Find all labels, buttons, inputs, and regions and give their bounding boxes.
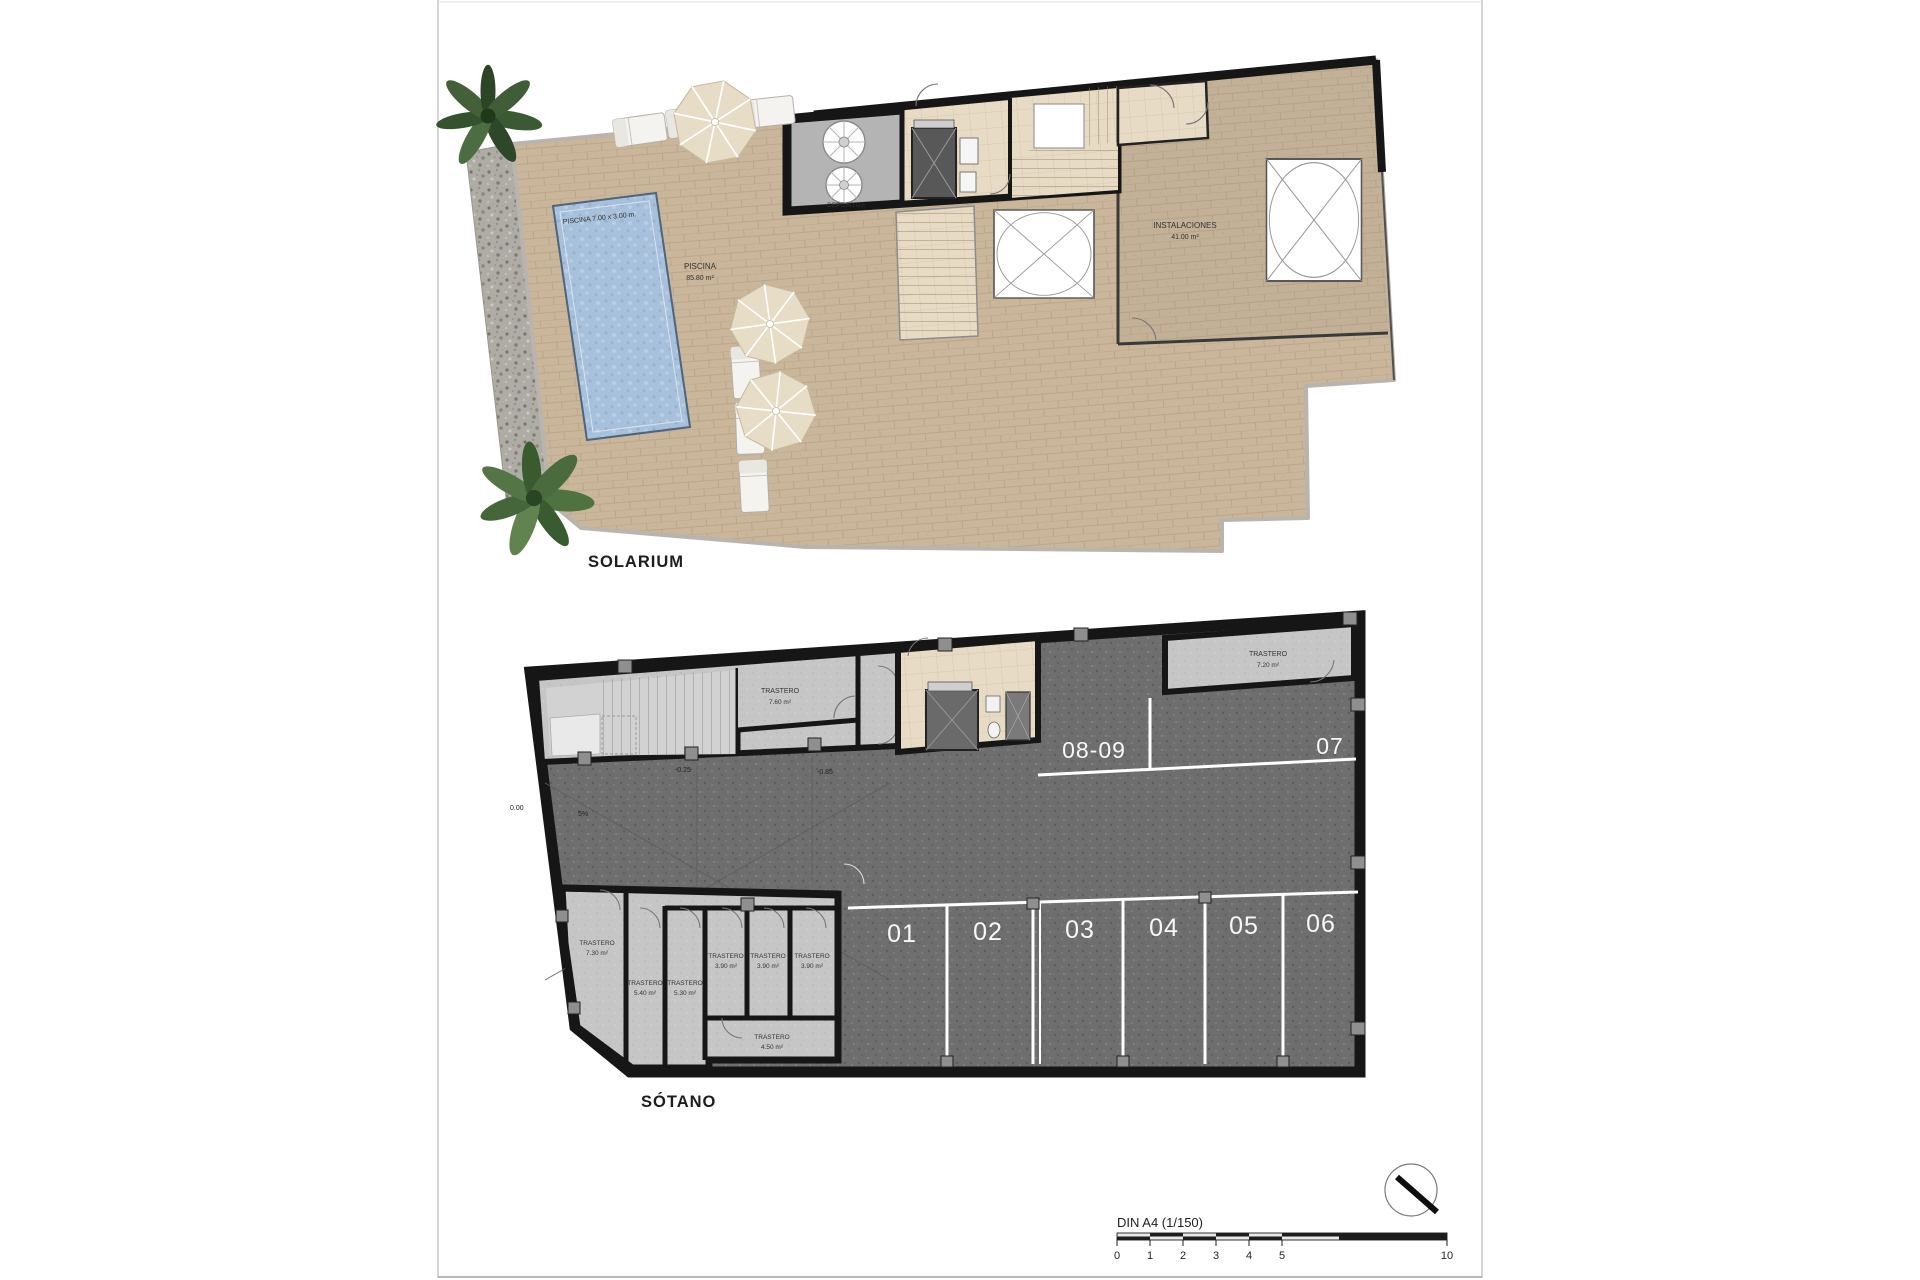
storeroom-area: 3.90 m² bbox=[757, 963, 780, 970]
machinery bbox=[914, 120, 954, 128]
roof-core: DEPOSITOS bbox=[786, 84, 1118, 212]
toilet-fixture bbox=[960, 138, 978, 164]
storeroom-label: TRASTERO bbox=[708, 953, 743, 960]
storeroom-area: 5.40 m² bbox=[634, 990, 657, 997]
parking-spot: 01 bbox=[887, 920, 917, 948]
pool-area-value: 85.80 m² bbox=[686, 275, 714, 282]
sink-fixture bbox=[986, 696, 1000, 712]
storeroom-label: TRASTERO bbox=[627, 980, 662, 987]
instalaciones-label: INSTALACIONES bbox=[1153, 221, 1216, 230]
sink-fixture bbox=[960, 172, 976, 192]
scale-tick: 4 bbox=[1246, 1250, 1252, 1262]
storeroom-area: 7.60 m² bbox=[769, 699, 792, 706]
water-tank-icon bbox=[826, 167, 862, 203]
scale-tick: 2 bbox=[1180, 1250, 1186, 1262]
basement-stairs bbox=[600, 670, 738, 756]
level-zero: 0.00 bbox=[510, 805, 524, 812]
floorplan-drawing: DEPOSITOS PISCINA 7.00 x 3.00 m. bbox=[0, 0, 1920, 1280]
north-arrow-icon bbox=[1385, 1164, 1437, 1216]
scale-label: DIN A4 (1/150) bbox=[1117, 1215, 1203, 1230]
machinery bbox=[928, 682, 972, 691]
scale-tick: 10 bbox=[1441, 1250, 1453, 1262]
storeroom-label: TRASTERO bbox=[579, 940, 614, 947]
parking-spot: 02 bbox=[973, 918, 1003, 946]
water-tank-icon bbox=[823, 121, 865, 163]
level-lower: -0.85 bbox=[817, 769, 833, 776]
scale-bar: DIN A4 (1/150) 0 1 2 3 4 5 10 bbox=[1114, 1215, 1453, 1262]
storeroom-area: 7.30 m² bbox=[586, 950, 609, 957]
parking-spot-0809: 08-09 bbox=[1062, 737, 1126, 763]
scale-tick: 5 bbox=[1279, 1250, 1285, 1262]
sotano-plan: TRASTERO 7.60 m² TRASTERO 7.20 bbox=[510, 612, 1365, 1072]
ramp-slope: 5% bbox=[578, 811, 588, 818]
parking-spot: 03 bbox=[1065, 916, 1095, 944]
storeroom-720: TRASTERO 7.20 m² bbox=[1165, 624, 1354, 692]
storeroom-label: TRASTERO bbox=[754, 1034, 789, 1041]
storeroom-area: 4.50 m² bbox=[761, 1044, 784, 1051]
parking-spot: 05 bbox=[1229, 912, 1259, 940]
parking-spot: 04 bbox=[1149, 914, 1179, 942]
plan-sheet-page: DEPOSITOS PISCINA 7.00 x 3.00 m. bbox=[0, 0, 1920, 1280]
sotano-title: SÓTANO bbox=[641, 1092, 716, 1111]
roof-corridor bbox=[1118, 81, 1208, 145]
toilet-fixture bbox=[988, 722, 1000, 738]
storeroom-cluster: TRASTERO 7.30 m² TRASTERO 5.40 m² TRASTE… bbox=[556, 888, 838, 1068]
storeroom-label: TRASTERO bbox=[761, 688, 800, 695]
parking-spot-07: 07 bbox=[1316, 733, 1344, 759]
level-upper: -0.25 bbox=[675, 767, 691, 774]
instalaciones-area: 41.00 m² bbox=[1171, 234, 1199, 241]
parking-spot: 06 bbox=[1306, 910, 1336, 938]
solarium-plan: DEPOSITOS PISCINA 7.00 x 3.00 m. bbox=[427, 56, 1394, 569]
storeroom-label: TRASTERO bbox=[750, 953, 785, 960]
storeroom-area: 3.90 m² bbox=[715, 963, 738, 970]
scale-tick: 3 bbox=[1213, 1250, 1219, 1262]
scale-tick: 1 bbox=[1147, 1250, 1153, 1262]
solarium-title: SOLARIUM bbox=[588, 553, 684, 571]
storeroom-area: 5.30 m² bbox=[674, 990, 697, 997]
storeroom-label: TRASTERO bbox=[1249, 651, 1288, 658]
pool-area-name: PISCINA bbox=[684, 262, 717, 271]
storeroom-label: TRASTERO bbox=[667, 980, 702, 987]
scale-tick: 0 bbox=[1114, 1250, 1120, 1262]
storeroom-area: 7.20 m² bbox=[1257, 662, 1280, 669]
depositos-label: DEPOSITOS bbox=[827, 202, 865, 209]
storeroom-area: 3.90 m² bbox=[801, 963, 824, 970]
storeroom-label: TRASTERO bbox=[794, 953, 829, 960]
basement-core bbox=[898, 638, 1038, 752]
